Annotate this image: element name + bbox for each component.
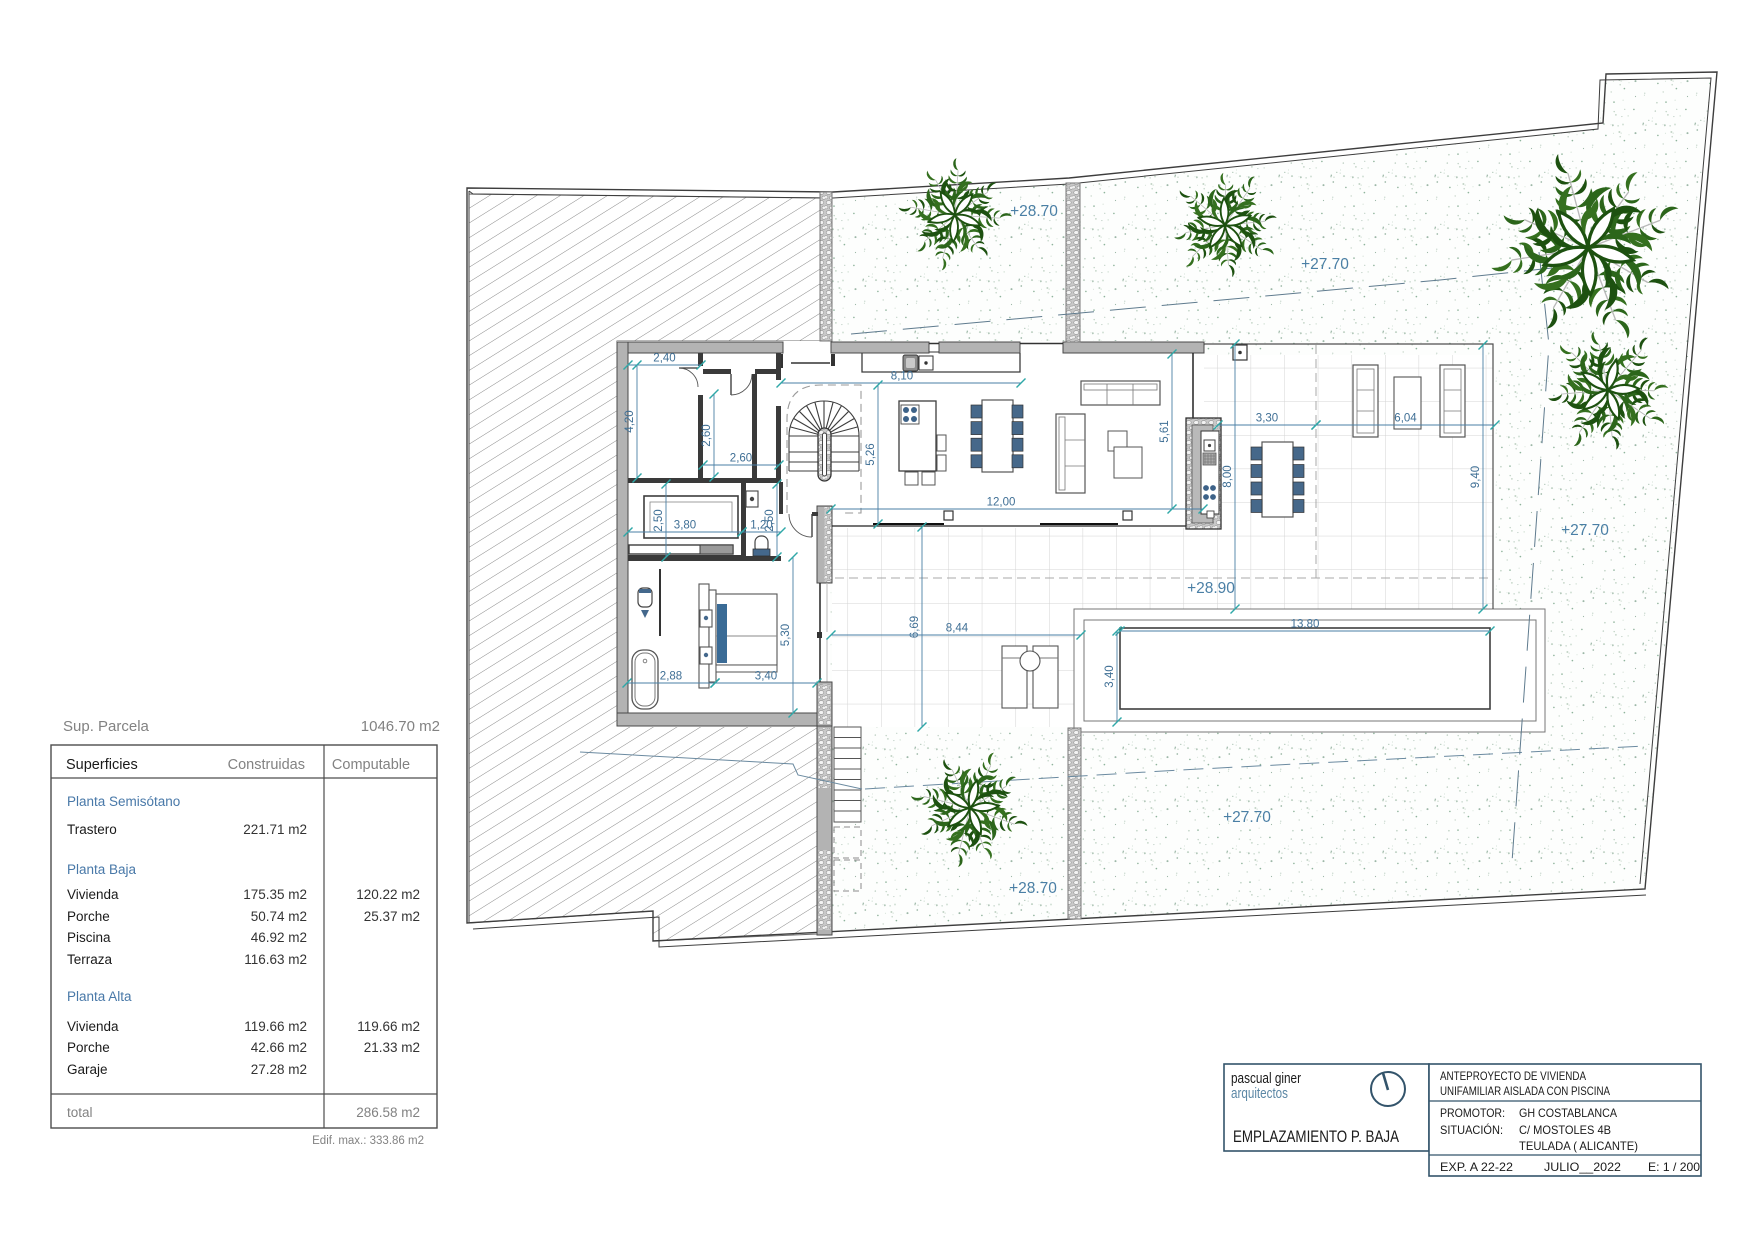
- svg-text:Porche: Porche: [67, 1040, 110, 1055]
- svg-text:EXP. A 22-22: EXP. A 22-22: [1440, 1160, 1513, 1174]
- svg-text:2,40: 2,40: [653, 353, 675, 365]
- svg-text:4,20: 4,20: [624, 410, 636, 432]
- svg-text:UNIFAMILIAR AISLADA CON PISCIN: UNIFAMILIAR AISLADA CON PISCINA: [1440, 1084, 1610, 1098]
- svg-text:21.33 m2: 21.33 m2: [364, 1040, 420, 1055]
- svg-text:Vivienda: Vivienda: [67, 887, 119, 902]
- svg-text:C/ MOSTOLES 4B: C/ MOSTOLES 4B: [1519, 1123, 1611, 1137]
- svg-text:+28.90: +28.90: [1187, 580, 1235, 597]
- svg-text:120.22 m2: 120.22 m2: [356, 887, 420, 902]
- svg-text:8,00: 8,00: [1222, 465, 1234, 487]
- svg-text:25.37 m2: 25.37 m2: [364, 909, 420, 924]
- svg-text:8,44: 8,44: [946, 623, 969, 635]
- svg-text:8,10: 8,10: [891, 371, 913, 383]
- svg-text:46.92 m2: 46.92 m2: [251, 930, 307, 945]
- svg-text:27.28 m2: 27.28 m2: [251, 1062, 307, 1077]
- svg-text:2,50: 2,50: [653, 509, 665, 531]
- svg-text:SITUACIÓN:: SITUACIÓN:: [1440, 1122, 1503, 1137]
- svg-text:5,61: 5,61: [1159, 420, 1171, 442]
- svg-text:3,40: 3,40: [1104, 665, 1116, 687]
- svg-text:+27.70: +27.70: [1223, 809, 1271, 826]
- svg-text:pascual giner: pascual giner: [1231, 1071, 1301, 1087]
- svg-text:total: total: [67, 1105, 93, 1120]
- svg-text:arquitectos: arquitectos: [1231, 1086, 1288, 1102]
- svg-text:Computable: Computable: [332, 757, 410, 773]
- svg-text:6,04: 6,04: [1394, 413, 1417, 425]
- svg-text:GH COSTABLANCA: GH COSTABLANCA: [1519, 1106, 1617, 1120]
- svg-text:50.74 m2: 50.74 m2: [251, 909, 307, 924]
- svg-text:+27.70: +27.70: [1561, 522, 1609, 539]
- svg-text:2,88: 2,88: [660, 671, 682, 683]
- svg-text:Garaje: Garaje: [67, 1062, 108, 1077]
- svg-text:12,00: 12,00: [987, 497, 1016, 509]
- svg-text:Trastero: Trastero: [67, 822, 117, 837]
- svg-text:116.63 m2: 116.63 m2: [244, 952, 307, 967]
- svg-text:JULIO__2022: JULIO__2022: [1544, 1160, 1621, 1174]
- svg-text:Planta Baja: Planta Baja: [67, 862, 137, 877]
- svg-text:13,80: 13,80: [1291, 619, 1320, 631]
- svg-text:Terraza: Terraza: [67, 952, 113, 967]
- svg-text:221.71 m2: 221.71 m2: [243, 822, 307, 837]
- svg-text:+27.70: +27.70: [1301, 256, 1349, 273]
- svg-text:42.66 m2: 42.66 m2: [251, 1040, 307, 1055]
- svg-text:PROMOTOR:: PROMOTOR:: [1440, 1106, 1505, 1120]
- svg-text:286.58 m2: 286.58 m2: [356, 1105, 420, 1120]
- svg-text:TEULADA ( ALICANTE): TEULADA ( ALICANTE): [1519, 1139, 1638, 1153]
- svg-text:Edif. max.: 333.86 m2: Edif. max.: 333.86 m2: [312, 1135, 424, 1147]
- svg-text:Superficies: Superficies: [66, 757, 138, 773]
- svg-text:2,60: 2,60: [730, 453, 752, 465]
- svg-text:5,30: 5,30: [780, 624, 792, 646]
- svg-text:2,50: 2,50: [764, 509, 776, 531]
- svg-text:E: 1 / 200: E: 1 / 200: [1648, 1160, 1700, 1174]
- svg-text:175.35 m2: 175.35 m2: [243, 887, 307, 902]
- svg-text:Planta Alta: Planta Alta: [67, 989, 132, 1004]
- svg-text:Vivienda: Vivienda: [67, 1019, 119, 1034]
- svg-text:3,80: 3,80: [674, 520, 696, 532]
- svg-text:+28.70: +28.70: [1009, 880, 1057, 897]
- svg-text:3,40: 3,40: [755, 671, 777, 683]
- svg-text:Sup. Parcela: Sup. Parcela: [63, 718, 150, 735]
- svg-text:ANTEPROYECTO DE VIVIENDA: ANTEPROYECTO DE VIVIENDA: [1440, 1069, 1586, 1083]
- svg-text:+28.70: +28.70: [1010, 203, 1058, 220]
- svg-text:Planta Semisótano: Planta Semisótano: [67, 794, 180, 809]
- svg-text:3,30: 3,30: [1256, 413, 1278, 425]
- svg-text:119.66 m2: 119.66 m2: [244, 1019, 307, 1034]
- svg-text:Piscina: Piscina: [67, 930, 111, 945]
- svg-text:Construidas: Construidas: [228, 757, 305, 773]
- svg-text:2,60: 2,60: [701, 424, 713, 446]
- svg-text:Porche: Porche: [67, 909, 110, 924]
- svg-text:5,26: 5,26: [865, 443, 877, 465]
- svg-text:EMPLAZAMIENTO P. BAJA: EMPLAZAMIENTO P. BAJA: [1233, 1128, 1399, 1146]
- svg-text:9,40: 9,40: [1470, 466, 1482, 488]
- svg-text:1046.70 m2: 1046.70 m2: [361, 718, 440, 735]
- svg-text:119.66 m2: 119.66 m2: [357, 1019, 420, 1034]
